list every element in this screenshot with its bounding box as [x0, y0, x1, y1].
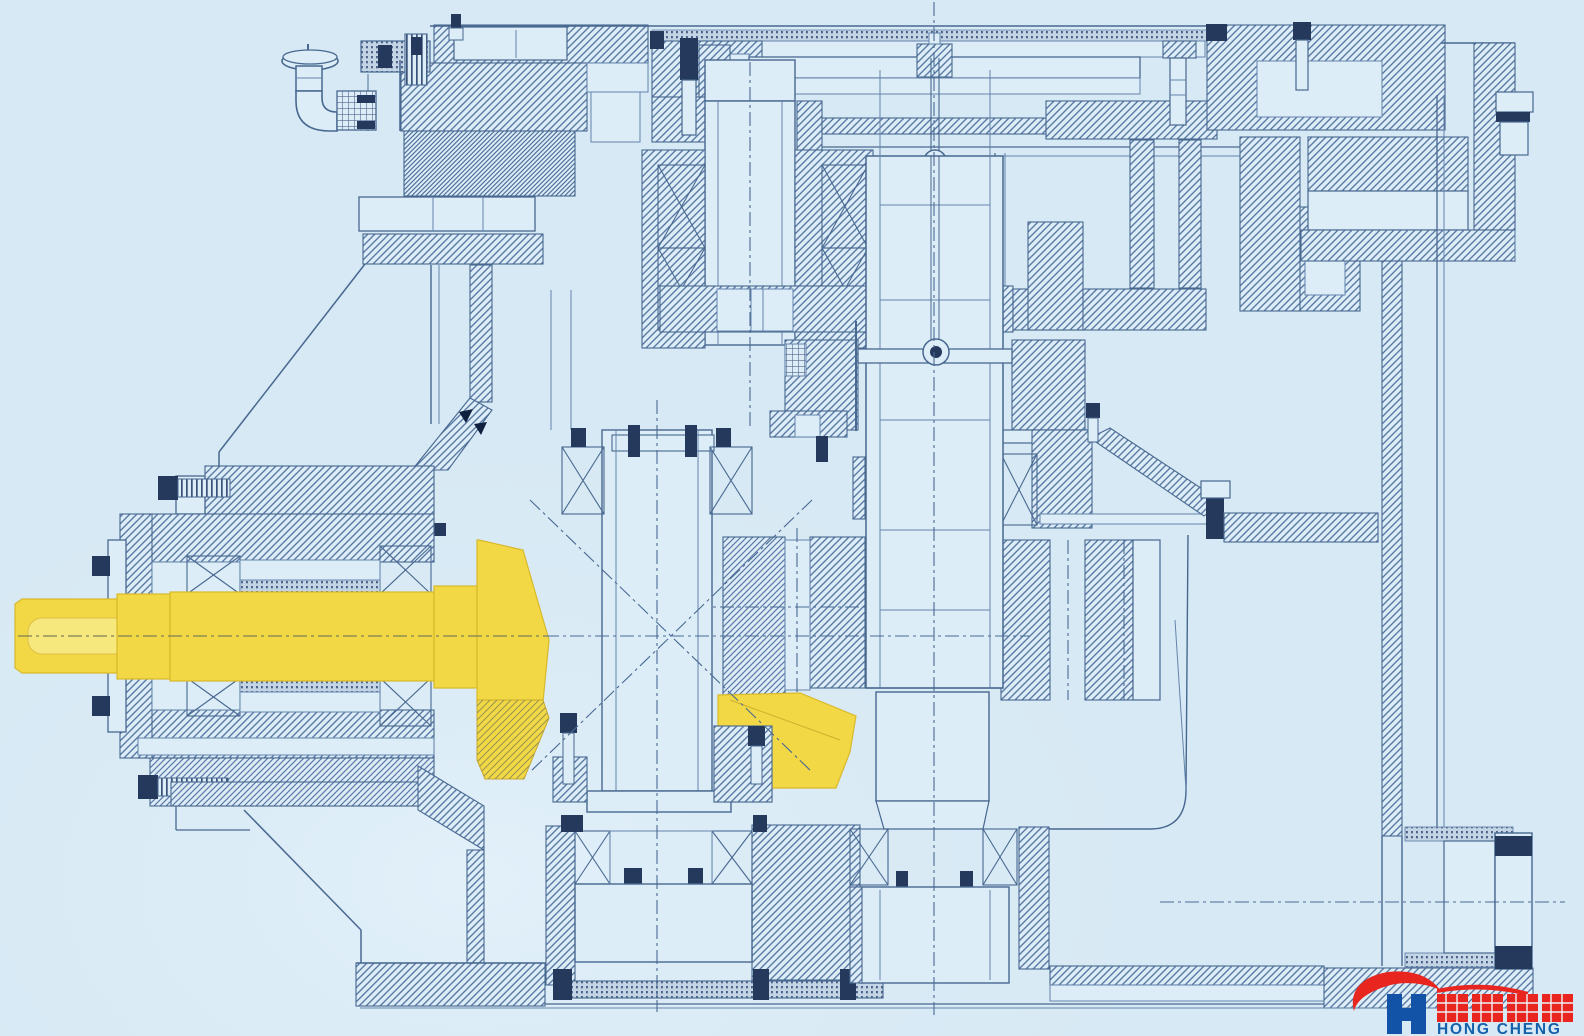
svg-text:HONG CHENG: HONG CHENG	[1437, 1021, 1562, 1036]
